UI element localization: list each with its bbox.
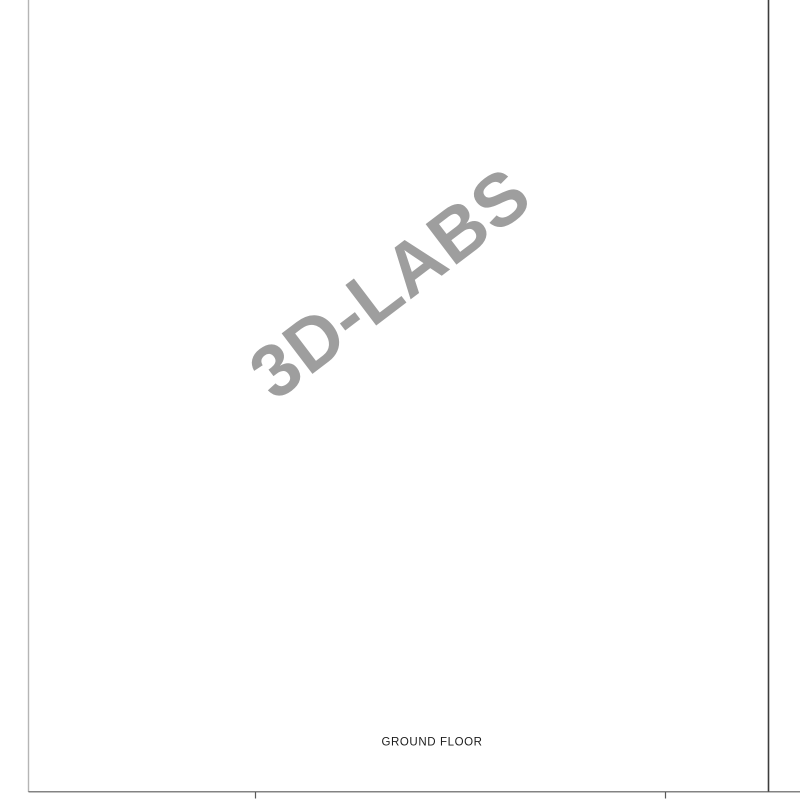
svg-text:GROUND FLOOR: GROUND FLOOR (381, 737, 482, 749)
